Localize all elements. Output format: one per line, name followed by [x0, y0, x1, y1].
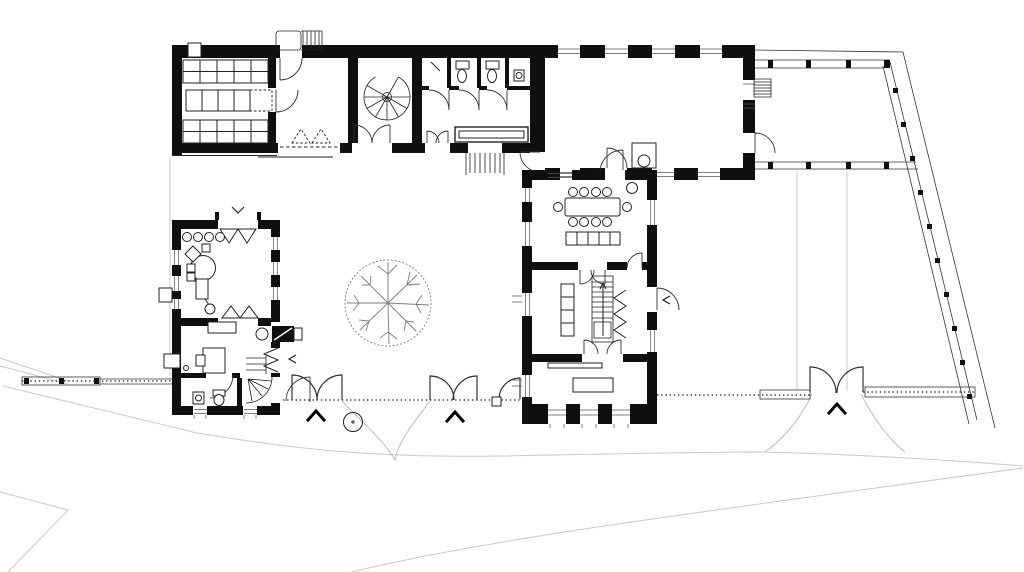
table-attachment [202, 244, 210, 252]
corner-stove [627, 183, 638, 194]
flue-circle [256, 328, 268, 340]
hall-exterior-stair-east [754, 79, 771, 97]
pendant-circle [205, 304, 215, 314]
floor-plan-drawing: Architectural ground-floor plan [0, 0, 1024, 572]
north-door-gap [280, 45, 302, 58]
paper-background [0, 0, 1024, 572]
fence-post [492, 397, 501, 406]
bath-basin [193, 392, 204, 404]
toilet-2 [486, 61, 499, 69]
shelf [208, 322, 236, 333]
dining-table [565, 198, 620, 216]
toilet-1 [456, 61, 469, 69]
wall-hatch-box-1 [159, 288, 172, 302]
desk [203, 348, 225, 373]
chimney-recess [188, 43, 201, 57]
toilet-bowl [214, 395, 224, 406]
desk-chair [196, 355, 205, 366]
rug-table [573, 378, 613, 392]
work-bench [196, 279, 208, 299]
floor-plan-page: Architectural ground-floor plan [0, 0, 1024, 572]
wall-hatch-box-2 [164, 354, 180, 368]
sideboard [566, 232, 620, 245]
